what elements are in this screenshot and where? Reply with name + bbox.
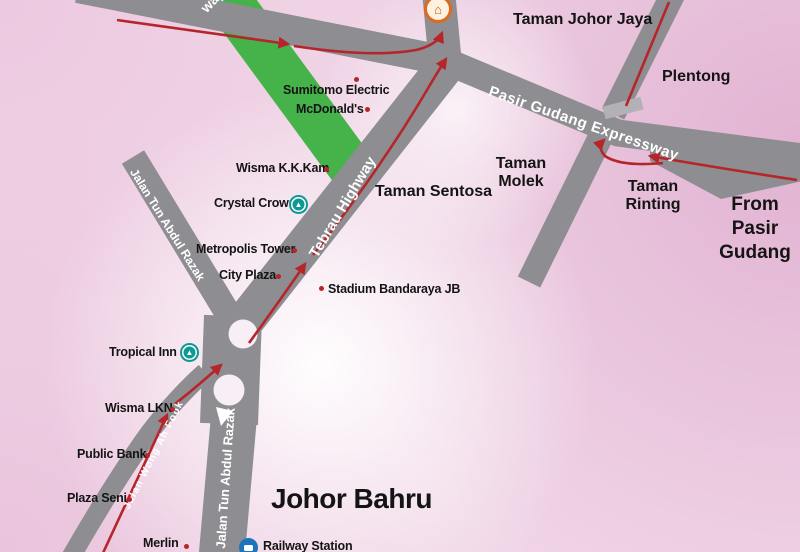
- landmark-crystal-crown: Crystal Crown: [214, 197, 296, 211]
- public-bank-dot: [145, 453, 150, 458]
- merlin-dot: [184, 544, 189, 549]
- road-jalan-wong-ah-fook: [68, 372, 205, 552]
- area-taman-rinting: Taman Rinting: [617, 178, 689, 213]
- stadium-bandaraya-dot: [319, 286, 324, 291]
- sumitomo-electric-dot: [354, 77, 359, 82]
- hotel-icon-crystal-crown: ▲: [289, 195, 308, 214]
- interchange-loop-hole-1: [229, 320, 258, 349]
- interchange-loop-hole-2: [214, 375, 245, 406]
- mcdonalds-dot: [365, 107, 370, 112]
- wisma-kk-kam-dot: [324, 167, 329, 172]
- landmark-public-bank: Public Bank: [77, 448, 146, 462]
- label-from-pasir-gudang: From Pasir Gudang: [710, 193, 800, 264]
- plaza-seni-dot: [127, 497, 132, 502]
- hotel-icon-tropical-inn: ▲: [180, 343, 199, 362]
- landmark-wisma-kk-kam: Wisma K.K.Kam: [236, 162, 329, 176]
- area-taman-johor-jaya: Taman Johor Jaya: [513, 11, 652, 29]
- landmark-tropical-inn: Tropical Inn: [109, 346, 177, 360]
- wisma-lkn-dot: [170, 407, 175, 412]
- landmark-mcdonalds: McDonald's: [296, 103, 364, 117]
- area-plentong: Plentong: [662, 68, 730, 86]
- city-plaza-dot: [276, 274, 281, 279]
- area-taman-sentosa: Taman Sentosa: [375, 183, 492, 201]
- metropolis-tower-dot: [292, 248, 297, 253]
- hotel-glyph: ▲: [295, 200, 303, 209]
- landmark-stadium-bandaraya-jb: Stadium Bandaraya JB: [328, 283, 460, 297]
- city-label-johor-bahru: Johor Bahru: [271, 484, 432, 515]
- landmark-metropolis-tower: Metropolis Tower: [196, 243, 295, 257]
- train-glyph: [244, 545, 253, 551]
- landmark-city-plaza: City Plaza: [219, 269, 276, 283]
- railway-station-icon: [239, 538, 258, 552]
- hotel-glyph: ▲: [186, 348, 194, 357]
- landmark-wisma-lkn: Wisma LKN: [105, 402, 173, 416]
- johor-bahru-route-map: way Jalan Tun Abdul Razak Tebrau Highway…: [0, 0, 800, 552]
- landmark-merlin: Merlin: [143, 537, 179, 551]
- landmark-sumitomo-electric: Sumitomo Electric: [283, 84, 389, 98]
- landmark-railway-station: Railway Station: [263, 540, 352, 552]
- area-taman-molek: Taman Molek: [488, 155, 554, 190]
- building-glyph: ⌂: [434, 3, 442, 16]
- landmark-plaza-seni: Plaza Seni: [67, 492, 127, 506]
